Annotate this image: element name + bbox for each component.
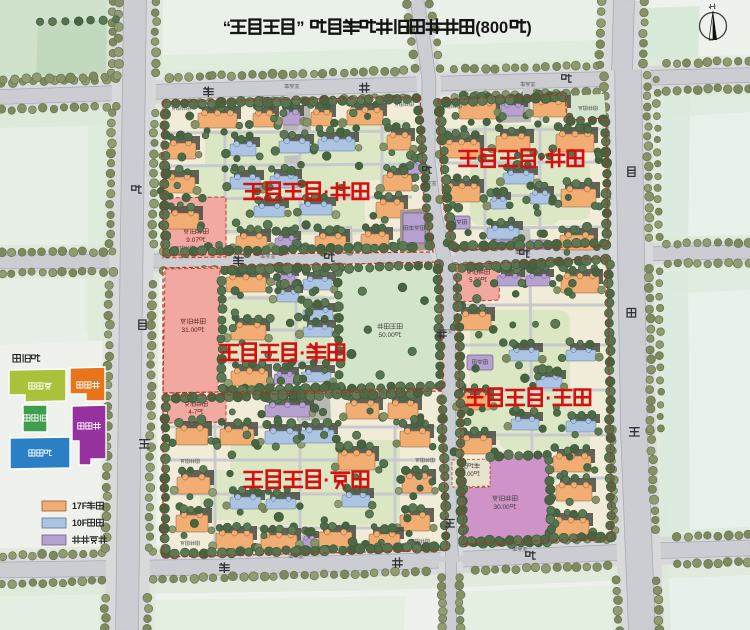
svg-text:4-7: 4-7 [188, 410, 197, 416]
svg-text:50.00: 50.00 [379, 332, 396, 339]
svg-text:30.00: 30.00 [494, 504, 511, 511]
svg-text:·: · [323, 470, 330, 492]
svg-text:17F: 17F [72, 501, 88, 511]
svg-text:·: · [299, 343, 306, 365]
svg-text:9.07: 9.07 [186, 237, 199, 244]
svg-text:·: · [323, 182, 330, 204]
svg-text:10F: 10F [72, 518, 88, 528]
svg-text:31.00: 31.00 [182, 327, 199, 334]
svg-text:”: ” [296, 19, 304, 37]
svg-text:“: “ [223, 19, 231, 37]
svg-text:·: · [538, 149, 545, 171]
svg-text:(800: (800 [475, 19, 508, 37]
svg-text:): ) [526, 19, 532, 37]
svg-text:·: · [545, 388, 552, 410]
